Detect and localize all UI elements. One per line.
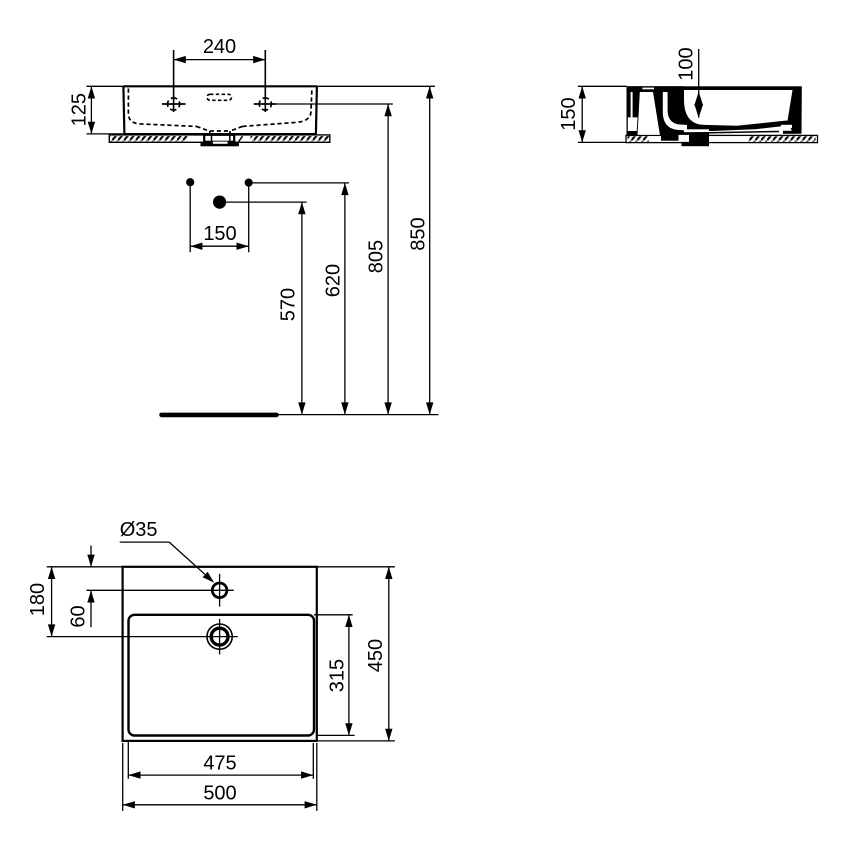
svg-text:150: 150 — [203, 223, 236, 245]
svg-text:180: 180 — [27, 583, 49, 616]
svg-text:100: 100 — [676, 47, 698, 80]
svg-text:500: 500 — [203, 783, 236, 805]
svg-text:450: 450 — [365, 639, 387, 672]
svg-text:150: 150 — [558, 97, 580, 130]
svg-text:240: 240 — [203, 36, 236, 58]
svg-text:315: 315 — [327, 659, 349, 692]
svg-text:475: 475 — [203, 753, 236, 775]
svg-text:620: 620 — [323, 264, 345, 297]
svg-text:60: 60 — [68, 605, 90, 627]
svg-text:570: 570 — [278, 288, 300, 321]
svg-text:850: 850 — [408, 217, 430, 250]
svg-text:125: 125 — [69, 93, 91, 126]
svg-text:805: 805 — [366, 240, 388, 273]
svg-text:Ø35: Ø35 — [120, 519, 158, 541]
